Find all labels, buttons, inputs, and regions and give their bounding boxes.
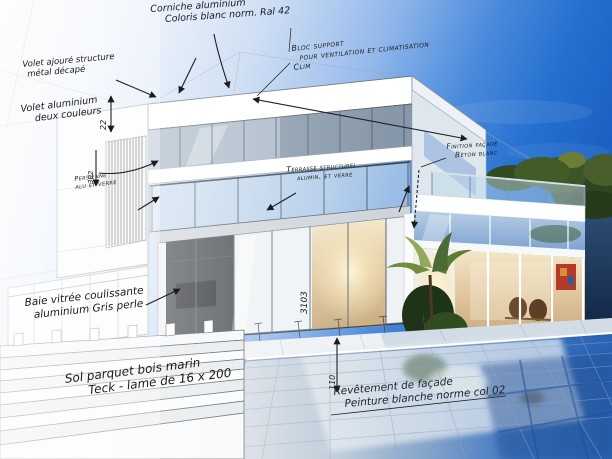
dining-chair (509, 297, 527, 319)
annotation-finition-facade: Finition façade Béton blanc (446, 138, 499, 160)
architectural-rendering: Corniche aluminium Coloris blanc norm. R… (0, 0, 612, 459)
dimension-label-roof-step: 22 (99, 120, 108, 130)
dimension-label-louver: 302 (87, 171, 95, 184)
dimension-label-door: 3103 (300, 291, 310, 314)
dimension-label-pool: 110 (328, 375, 337, 390)
